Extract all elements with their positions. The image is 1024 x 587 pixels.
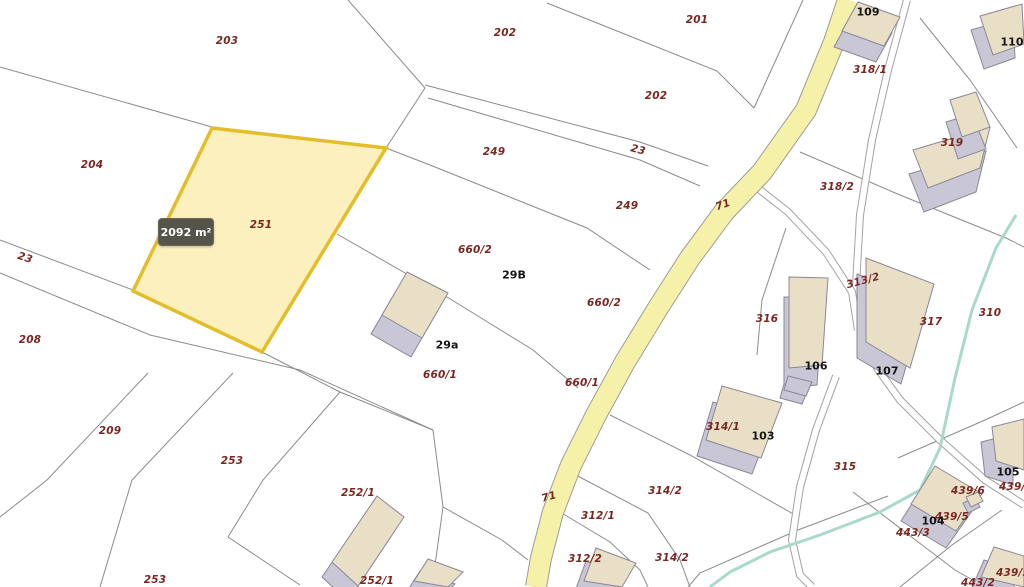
map-geometry-layer xyxy=(0,0,1024,587)
building-106 xyxy=(789,277,828,368)
area-tooltip: 2092 m² xyxy=(158,218,214,246)
parcel-boundary-line xyxy=(228,392,340,585)
parcel-boundary-line xyxy=(985,402,1024,420)
parcel-boundary-line xyxy=(428,98,700,186)
parcel-boundary-line xyxy=(0,240,133,290)
cadastral-map-canvas[interactable]: 20320220120220424923249318/1319318/27123… xyxy=(0,0,1024,587)
parcel-boundary-line xyxy=(386,148,650,270)
parcel-boundary-line xyxy=(800,152,1024,247)
parcel-boundary-line xyxy=(754,0,803,108)
parcel-boundary-line xyxy=(443,507,528,560)
building-bottom-center xyxy=(414,559,463,587)
area-tooltip-text: 2092 m² xyxy=(161,226,212,239)
parcel-boundary-line xyxy=(348,0,425,88)
building-252 xyxy=(332,496,404,586)
parcel-boundary-line xyxy=(0,67,212,127)
parcel-boundary-line xyxy=(757,228,786,355)
building-312 xyxy=(584,548,636,587)
parcel-boundary-line xyxy=(386,88,425,148)
parcel-boundary-line xyxy=(547,3,754,108)
parcel-boundary-line xyxy=(425,85,708,166)
parcel-boundary-line xyxy=(0,373,148,517)
parcel-boundary-line xyxy=(688,496,888,587)
parcel-boundary-line xyxy=(337,234,578,388)
parcel-boundary-line xyxy=(100,373,233,587)
